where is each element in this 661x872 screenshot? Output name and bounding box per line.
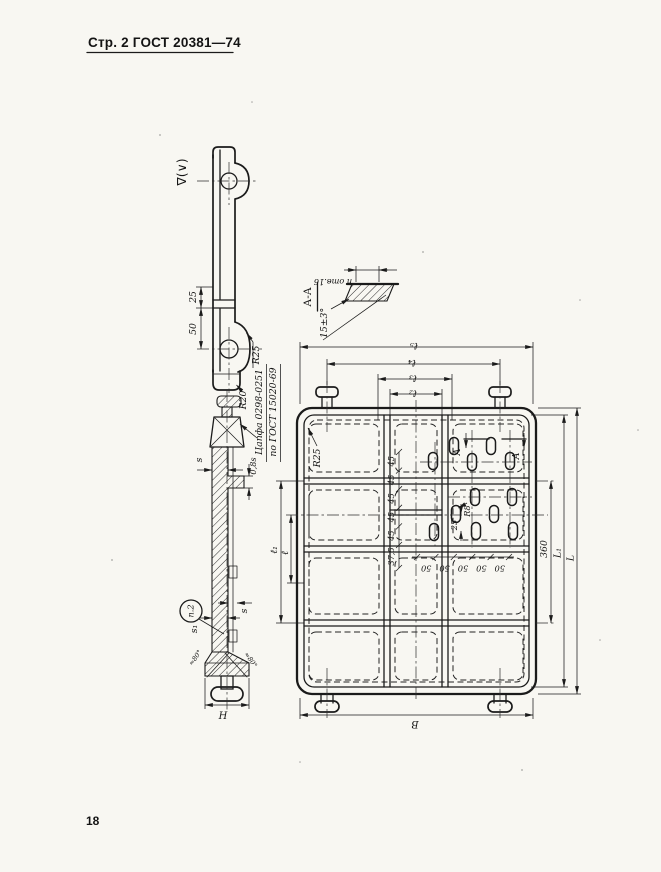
chain50-label: 50 [439,564,449,574]
dim-s-rib: s [239,608,250,613]
page-header: Стр. 2 ГОСТ 20381—74 [87,35,241,53]
dim-L1: L₁ [553,548,564,559]
dim-l2: ℓ₂ [409,388,417,399]
chain45-label: 45 [386,512,396,523]
note-circle-label: п.2 [186,604,196,617]
roughness-mark: ∇(∨) [174,158,189,186]
corner-radius-label: R25 [312,449,323,469]
slot-offset-label: 25 [449,520,459,531]
dim-360: 360 [539,540,550,558]
scan-specks [111,101,639,771]
centerlines [286,400,556,700]
profile-r25-label: R25 [251,346,262,366]
dim-l5: ℓ₅ [410,340,418,351]
callout-line2: по ГОСТ 15020-69 [268,367,279,456]
callout-line1: Цапфа 0298-0251 [254,369,265,455]
chain45-label: 45 [386,493,396,504]
chain45-label: 45 [386,475,396,486]
drawing-canvas: Стр. 2 ГОСТ 20381—74 18 25 50 R25 [0,0,661,872]
slot-radius-label: R8 [462,505,472,517]
angle-15-3: 15±3° [319,308,330,338]
left-dims: ℓ₁ ℓ [269,481,304,623]
bottom-dim: В [300,698,533,729]
page-number: 18 [86,814,100,828]
section-aa-title: А-А [302,287,314,306]
section-aa-detail: А-А п отв.16 15±3° [302,266,398,340]
main-view: А А R25 R8 25 45 45 45 45 45 37,5 [269,340,581,729]
page-header-text: Стр. 2 ГОСТ 20381—74 [88,35,241,50]
dim-l: ℓ [280,551,291,555]
chain50-label: 50 [458,564,468,574]
section-mark-left: А [452,448,463,456]
dim-l1: ℓ₁ [269,546,280,554]
holes-note: п отв.16 [314,277,352,287]
profile-dim-25: 25 [188,291,199,304]
profile-view: 25 50 R25 R20 ∇(∨) [174,147,262,410]
chain-50: 50 50 50 50 50 [412,554,514,574]
dim-37-5: 37,5 [386,547,396,565]
draft-angle-left: ≈80° [187,649,203,668]
dim-B: В [411,718,419,729]
chain50-label: 50 [495,564,505,574]
scanned-standard-page: Стр. 2 ГОСТ 20381—74 18 25 50 R25 [0,0,661,872]
chain45-label: 45 [386,456,396,467]
dim-08s: 0,8s [248,457,258,474]
chain50-label: 50 [476,564,486,574]
chain50-label: 50 [421,564,431,574]
dim-H: H [218,711,228,722]
section-mark-right: А [511,452,522,460]
dim-l4: ℓ₄ [408,357,416,368]
right-dims: 360 L₁ L [531,408,581,694]
internal-ribs [304,415,529,687]
dim-L: L [566,555,577,562]
chain45-label: 45 [386,530,396,541]
dim-s-wall: s [194,457,205,462]
trunnion-callout: Цапфа 0298-0251 по ГОСТ 15020-69 [240,364,281,462]
profile-dim-50: 50 [188,323,199,335]
dim-s1: s₁ [189,625,200,634]
section-view: ≈80° ≈80° s 0,8s s s₁ п.2 H [180,390,259,722]
dim-l3: ℓ₃ [409,373,417,384]
